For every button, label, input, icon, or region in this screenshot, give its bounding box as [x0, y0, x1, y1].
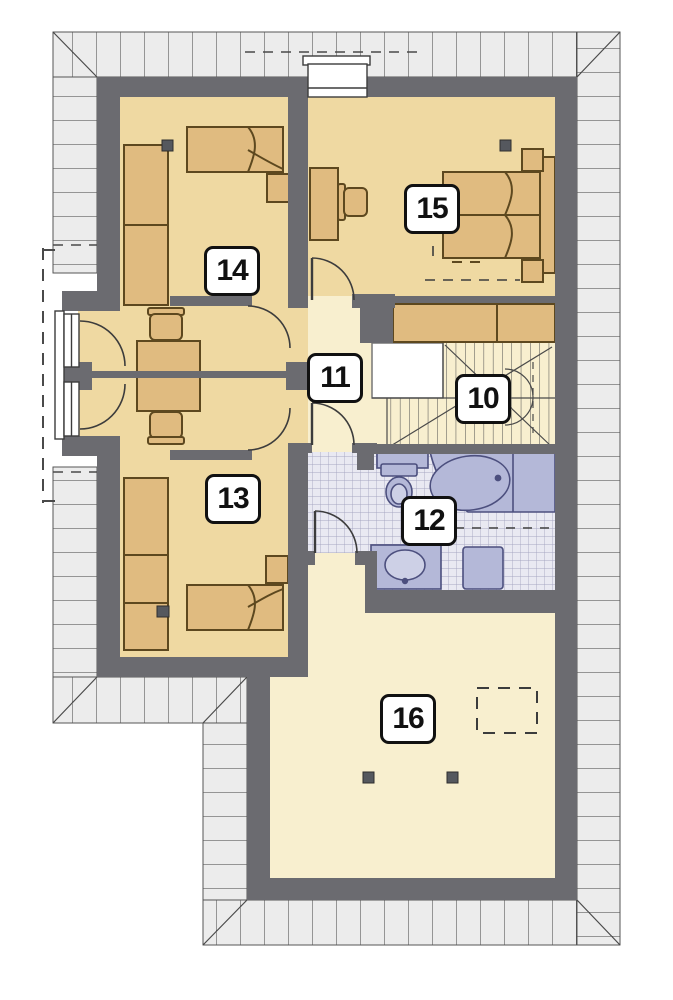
wall-divider-13-bath	[288, 443, 308, 657]
ceiling-lamp-room14	[162, 140, 173, 151]
desk	[310, 168, 338, 240]
post-room16-right	[447, 772, 458, 783]
wall-stair-left-chunk	[360, 296, 393, 343]
room-label-bathroom: 12	[401, 496, 457, 546]
nightstand	[522, 260, 543, 282]
roof-band-bottom	[203, 900, 577, 945]
wardrobe	[124, 478, 168, 650]
bathtub-faucet	[495, 475, 500, 480]
wall-room16-left	[247, 657, 270, 900]
shower-unit	[463, 547, 503, 589]
floor-plan-page: 10 11 12 13 14 15 16	[0, 0, 673, 1000]
wall-room14-bottom	[170, 296, 252, 306]
chair-seat	[344, 188, 367, 216]
roof-band-left-lower	[53, 467, 97, 677]
nightstand	[266, 556, 288, 583]
washbasin	[385, 550, 425, 580]
dormer-wall-bottom	[62, 436, 120, 456]
wall-bath-bottom	[365, 590, 555, 613]
chair-back	[148, 437, 184, 444]
dormer-roof-projection-dashes	[43, 248, 55, 503]
wall-room13-bottom	[97, 657, 308, 677]
room-label-attic-room: 16	[380, 694, 436, 744]
post-room16-left	[363, 772, 374, 783]
room-label-bedroom-13: 13	[205, 474, 261, 524]
bed	[187, 127, 283, 172]
chair-seat	[150, 314, 182, 340]
chair-seat	[150, 412, 182, 438]
dormer-wall-top	[62, 291, 120, 311]
washbasin-cabinet	[371, 545, 441, 589]
nightstand	[267, 174, 289, 202]
nightstand	[522, 149, 543, 171]
stair-bench	[393, 304, 555, 342]
ceiling-lamp-room13	[157, 606, 169, 617]
wall-right	[555, 77, 577, 900]
wall-bath-door-right	[352, 443, 377, 453]
wall-notch-left	[288, 551, 315, 565]
room-label-bedroom-15: 15	[404, 184, 460, 234]
ceiling-lamp-room15	[500, 140, 511, 151]
room-label-hallway: 11	[307, 353, 363, 403]
roof-band-bottom-left-block	[53, 677, 247, 723]
roof-band-right	[577, 32, 620, 945]
wall-room15-hall-thin	[395, 296, 555, 303]
window-room15-top	[303, 56, 370, 97]
stairwell-void	[372, 343, 443, 398]
room-label-bedroom-14: 14	[204, 246, 260, 296]
wall-left-upper	[97, 77, 120, 293]
room-label-staircase: 10	[455, 374, 511, 424]
bed	[187, 585, 283, 630]
wall-bottom	[247, 878, 577, 900]
wall-bath-door-left	[288, 443, 312, 453]
roof-band-left-upper	[53, 77, 97, 273]
wall-room13-top	[170, 450, 252, 460]
alcove-partition	[88, 371, 292, 378]
wall-stair-bath	[372, 444, 555, 454]
floor-plan-svg	[0, 0, 673, 1000]
wall-bath-stub	[357, 452, 374, 470]
wall-left-lower	[97, 453, 120, 677]
wall-divider-14-15	[288, 97, 308, 308]
roof-band-room16-left	[203, 723, 247, 900]
